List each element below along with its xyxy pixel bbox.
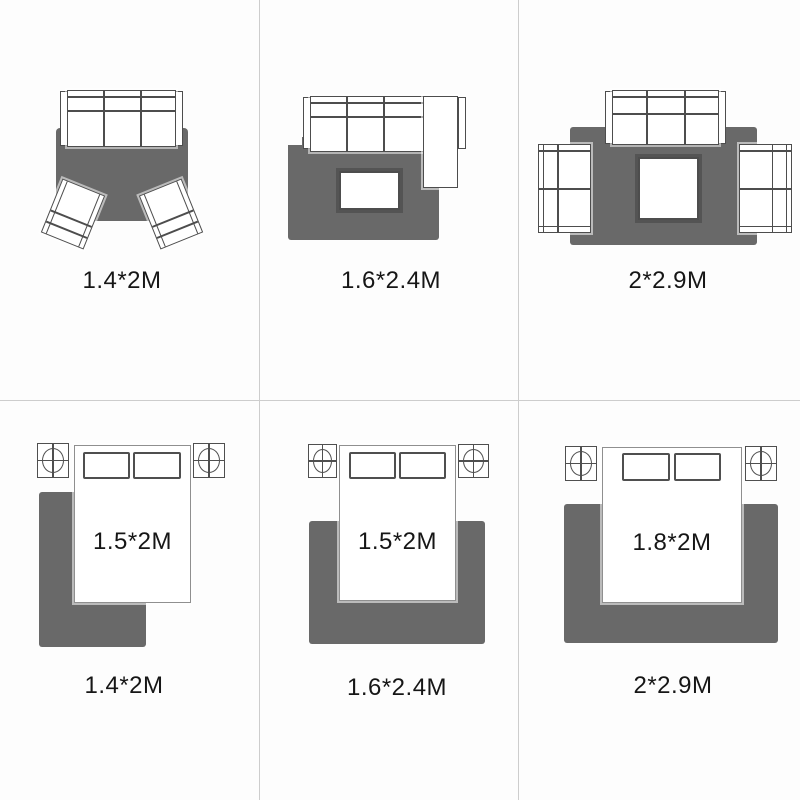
lamp-icon [194,444,224,477]
coffee-table [638,157,699,220]
pillow-right [133,452,181,479]
loveseat-armrest-line [740,150,791,152]
pillow-right [674,453,721,481]
bed: 1.5*2M [74,445,191,603]
nightstand-right [745,446,777,481]
coffee-table [339,171,400,210]
loveseat-right [739,144,792,233]
pillow-right [399,452,446,479]
bed-size-label: 1.5*2M [340,528,455,556]
loveseat-armrest-line [539,150,590,152]
nightstand-left [565,446,597,481]
panel-bedroom-large: 1.8*2M 2*2.9M [518,400,800,800]
sofa-body [612,90,719,145]
sofa-seat-line [68,110,175,112]
panel-living-room-sectional: 1.6*2.4M [259,0,518,400]
rug-size-label: 1.6*2.4M [291,267,491,295]
rug-size-label: 2*2.9M [568,267,768,295]
lamp-icon [459,445,488,477]
armchair-back-line [157,221,198,239]
bed: 1.8*2M [602,447,742,603]
nightstand-left [37,443,69,478]
sofa-seat-line [613,113,718,115]
loveseat-armrest-line [539,226,590,228]
sofa-cushion-divider [383,97,385,151]
nightstand-right [193,443,225,478]
loveseat-seat-divider [539,188,590,190]
sofa-back-line [613,96,718,98]
rug-size-guide: 1.4*2M 1.6*2.4M [0,0,800,800]
sofa-cushion-divider [140,91,142,146]
chaise-lounge [423,96,458,188]
sofa-armrest-right [175,91,183,146]
bed-size-label: 1.8*2M [603,529,741,557]
lamp-icon [746,447,776,480]
panel-bedroom-small: 1.5*2M 1.4*2M [0,400,259,800]
sofa-cushion-divider [346,97,348,151]
bed: 1.5*2M [339,445,456,601]
panel-bedroom-medium: 1.5*2M 1.6*2.4M [259,400,518,800]
sofa-cushion-divider [646,91,648,144]
sofa [605,90,726,145]
nightstand-right [458,444,489,478]
lamp-icon [309,445,336,477]
pillow-left [349,452,396,479]
loveseat-armrest-line [740,226,791,228]
pillow-left [83,452,130,479]
sofa-armrest-right [458,97,466,149]
panel-living-room-three-piece: 2*2.9M [518,0,800,400]
sofa-back-line [68,96,175,98]
sofa-armrest-right [718,91,726,144]
sofa-cushion-divider [103,91,105,146]
nightstand-left [308,444,337,478]
loveseat-left [538,144,591,233]
pillow-left [622,453,670,481]
panel-living-room-armchairs: 1.4*2M [0,0,259,400]
sofa-body [67,90,176,147]
lamp-icon [38,444,68,477]
rug-size-label: 1.4*2M [24,672,224,700]
rug-size-label: 1.6*2.4M [297,674,497,702]
rug-size-label: 1.4*2M [22,267,222,295]
lamp-icon [566,447,596,480]
sofa [60,90,183,147]
sofa-cushion-divider [684,91,686,144]
loveseat-seat-divider [740,188,791,190]
rug-size-label: 2*2.9M [573,672,773,700]
bed-size-label: 1.5*2M [75,528,190,556]
